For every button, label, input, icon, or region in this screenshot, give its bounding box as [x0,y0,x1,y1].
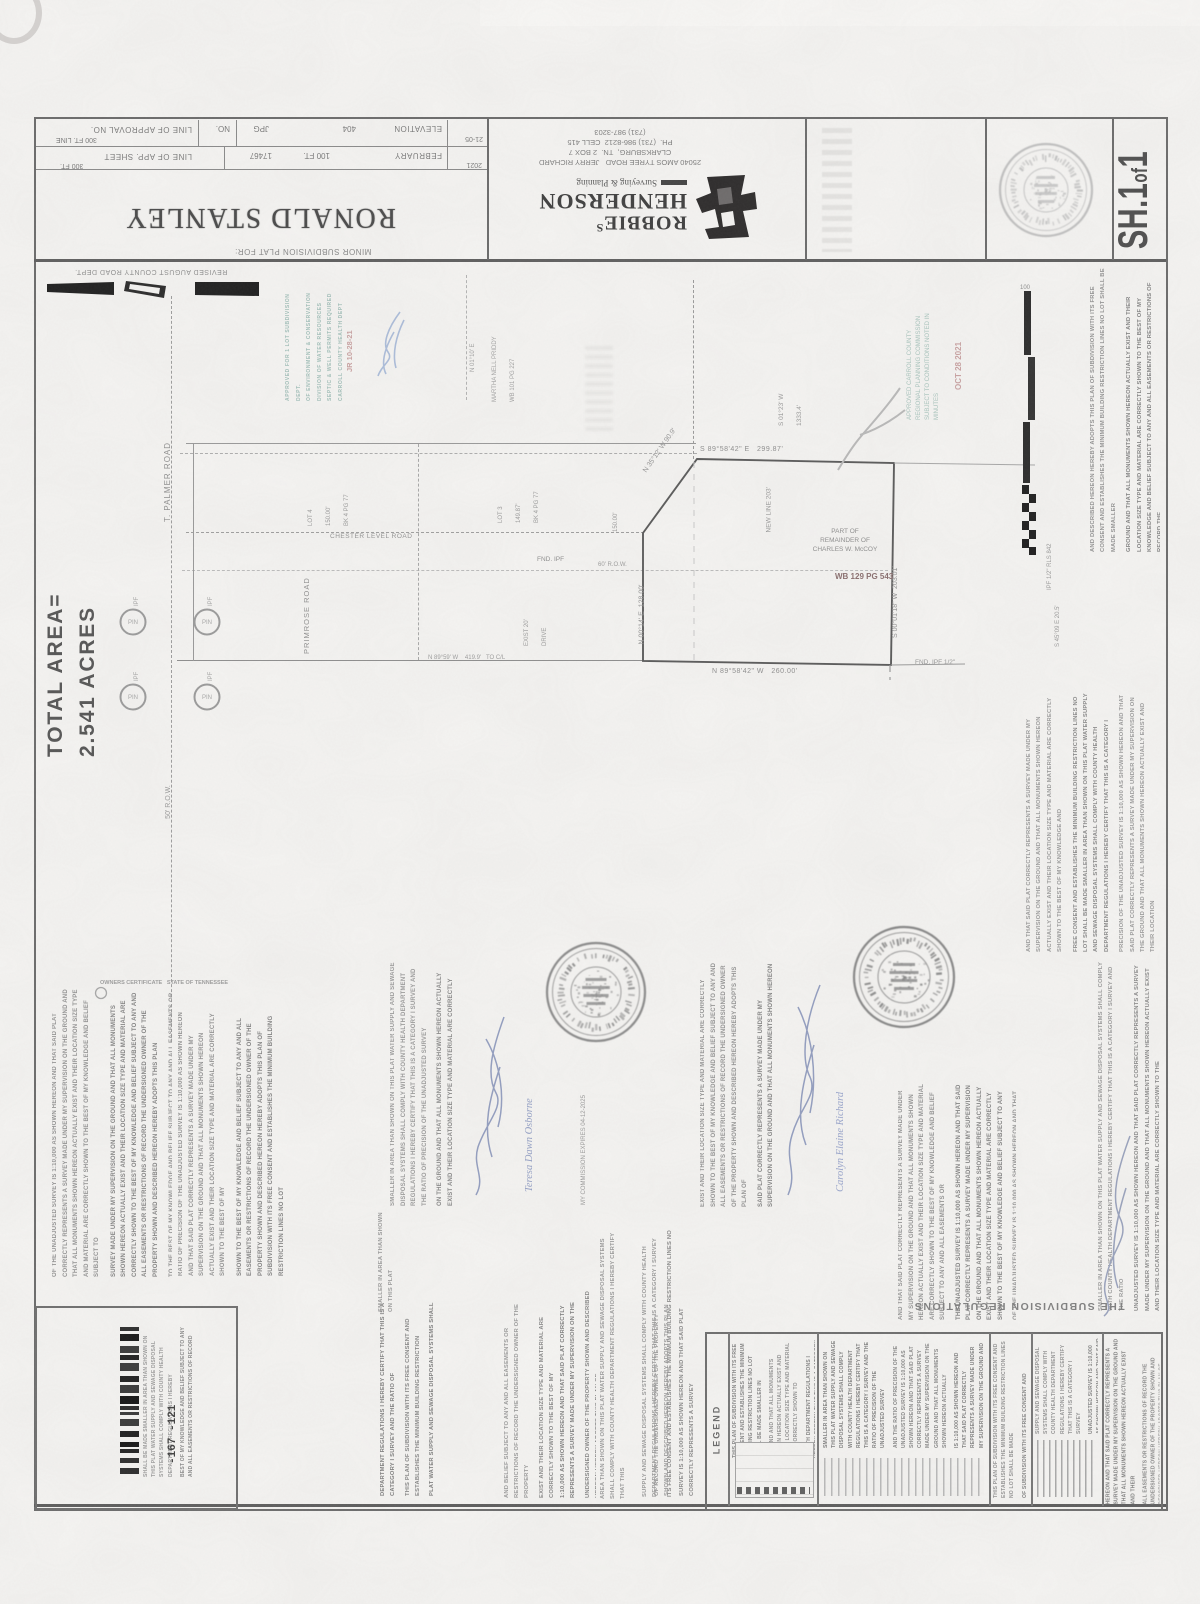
svg-text:PIN: PIN [128,620,138,626]
svg-text:PIN: PIN [202,695,212,701]
svg-text:PIN: PIN [202,620,212,626]
svg-text:PIN: PIN [128,695,138,701]
svg-text:100: 100 [1020,285,1031,291]
